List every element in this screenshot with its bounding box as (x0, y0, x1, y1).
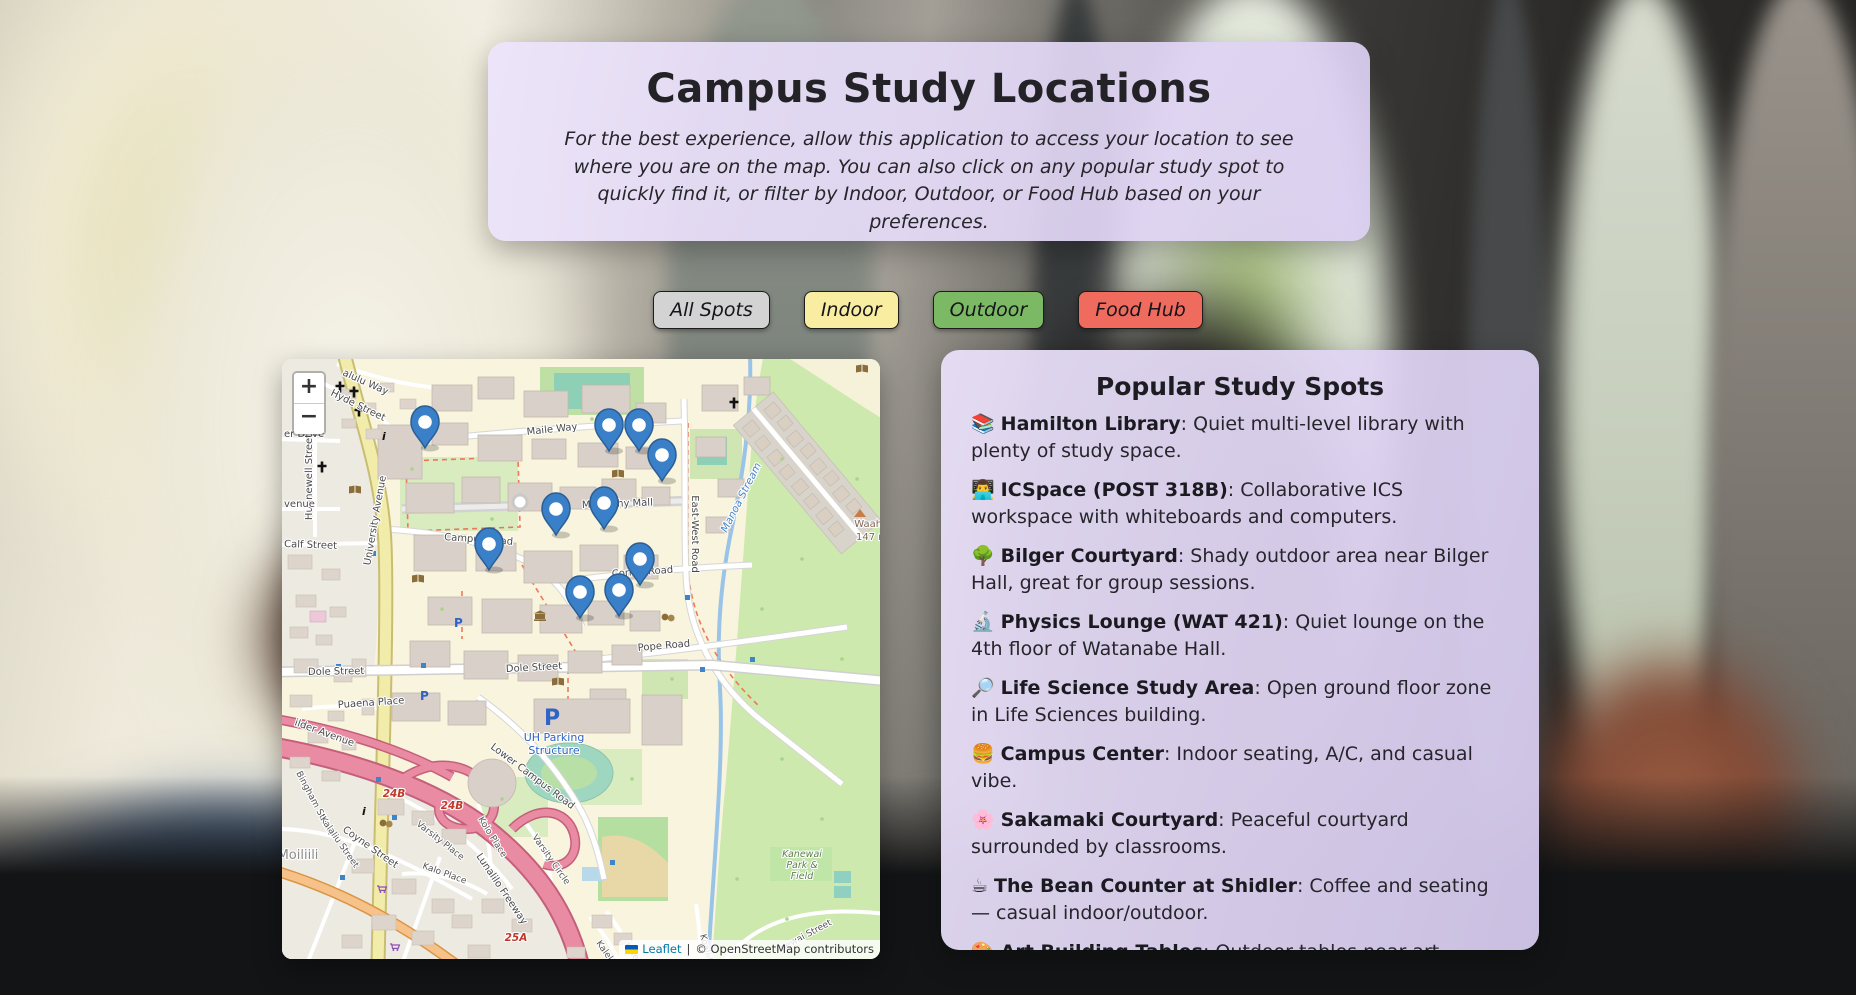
spot-name: Sakamaki Courtyard (1001, 809, 1219, 831)
spot-emoji: 👨‍💻 (971, 479, 995, 501)
map-label: 147 m (856, 532, 880, 543)
map-label: Calf Street (284, 539, 337, 552)
map-label: 25A (505, 932, 528, 944)
spot-emoji: ☕ (971, 875, 988, 897)
map-label: Park & (786, 860, 817, 871)
map-label: Dole Street (308, 666, 365, 678)
map-label: Kanewai (782, 849, 822, 860)
spot-item[interactable]: 🔎Life Science Study Area: Open ground fl… (971, 675, 1509, 729)
library-icon (856, 365, 868, 373)
spot-item[interactable]: 👨‍💻ICSpace (POST 318B): Collaborative IC… (971, 477, 1509, 531)
map-label: Structure (528, 744, 579, 757)
spot-name: Art Building Tables (1001, 941, 1203, 951)
spot-emoji: 🎨 (971, 941, 995, 951)
spot-emoji: 📚 (971, 413, 995, 435)
spot-item[interactable]: 🌸Sakamaki Courtyard: Peaceful courtyard … (971, 807, 1509, 861)
map-attribution: Leaflet | © OpenStreetMap contributors (619, 940, 880, 959)
map-label: Waahila (854, 519, 880, 530)
spot-emoji: 🍔 (971, 743, 995, 765)
spot-name: ICSpace (POST 318B) (1001, 479, 1228, 501)
library-icon (349, 486, 361, 494)
spot-item[interactable]: 🌳Bilger Courtyard: Shady outdoor area ne… (971, 543, 1509, 597)
spot-name: Life Science Study Area (1001, 677, 1255, 699)
filter-button-outdoor[interactable]: Outdoor (933, 291, 1045, 329)
osm-attribution: © OpenStreetMap contributors (695, 942, 874, 956)
spot-item[interactable]: ☕The Bean Counter at Shidler: Coffee and… (971, 873, 1509, 927)
header-card: Campus Study Locations For the best expe… (488, 42, 1370, 241)
spot-name: Hamilton Library (1001, 413, 1181, 435)
ukraine-flag-icon (625, 945, 638, 954)
map-label: 24B (441, 800, 464, 812)
leaflet-link[interactable]: Leaflet (642, 942, 681, 956)
spot-name: Campus Center (1001, 743, 1164, 765)
popular-spots-panel: Popular Study Spots 📚Hamilton Library: Q… (941, 350, 1539, 950)
map-label: Moiliili (282, 848, 318, 863)
map-zoom-control: + − (292, 371, 326, 436)
map-label: 24B (383, 788, 406, 800)
spots-heading: Popular Study Spots (971, 372, 1509, 401)
spot-item[interactable]: 🍔Campus Center: Indoor seating, A/C, and… (971, 741, 1509, 795)
spot-name: Physics Lounge (WAT 421) (1001, 611, 1283, 633)
spot-emoji: 🔬 (971, 611, 995, 633)
library-icon (552, 678, 564, 686)
zoom-out-button[interactable]: − (294, 403, 324, 434)
spots-list: 📚Hamilton Library: Quiet multi-level lib… (971, 411, 1509, 950)
parking-icon: P (420, 689, 429, 703)
library-icon (412, 575, 424, 583)
page-description: For the best experience, allow this appl… (548, 126, 1310, 236)
filter-button-all[interactable]: All Spots (653, 291, 770, 329)
spot-item[interactable]: 📚Hamilton Library: Quiet multi-level lib… (971, 411, 1509, 465)
map-label: East-West Road (689, 495, 700, 573)
filter-button-food[interactable]: Food Hub (1078, 291, 1203, 329)
map[interactable]: + − (282, 359, 880, 959)
parking-icon: P (544, 706, 560, 731)
map-label: UH Parking (524, 731, 585, 744)
spot-emoji: 🌸 (971, 809, 995, 831)
spot-emoji: 🔎 (971, 677, 995, 699)
info-icon: i (362, 805, 366, 818)
spot-emoji: 🌳 (971, 545, 995, 567)
page-title: Campus Study Locations (548, 66, 1310, 112)
info-icon: i (382, 430, 386, 443)
spot-item[interactable]: 🎨Art Building Tables: Outdoor tables nea… (971, 939, 1509, 951)
filter-bar: All SpotsIndoorOutdoorFood Hub (0, 291, 1856, 329)
zoom-in-button[interactable]: + (294, 373, 324, 403)
map-canvas[interactable]: P P P i i alulu WayHyde Streeter DriveHu… (282, 359, 880, 959)
spot-item[interactable]: 🔬Physics Lounge (WAT 421): Quiet lounge … (971, 609, 1509, 663)
filter-button-indoor[interactable]: Indoor (804, 291, 899, 329)
spot-name: Bilger Courtyard (1001, 545, 1178, 567)
map-label: venue (284, 499, 315, 510)
spot-name: The Bean Counter at Shidler (994, 875, 1297, 897)
attribution-separator: | (686, 942, 690, 956)
map-label: Field (791, 871, 815, 882)
parking-icon: P (454, 616, 463, 630)
library-icon (612, 470, 624, 478)
